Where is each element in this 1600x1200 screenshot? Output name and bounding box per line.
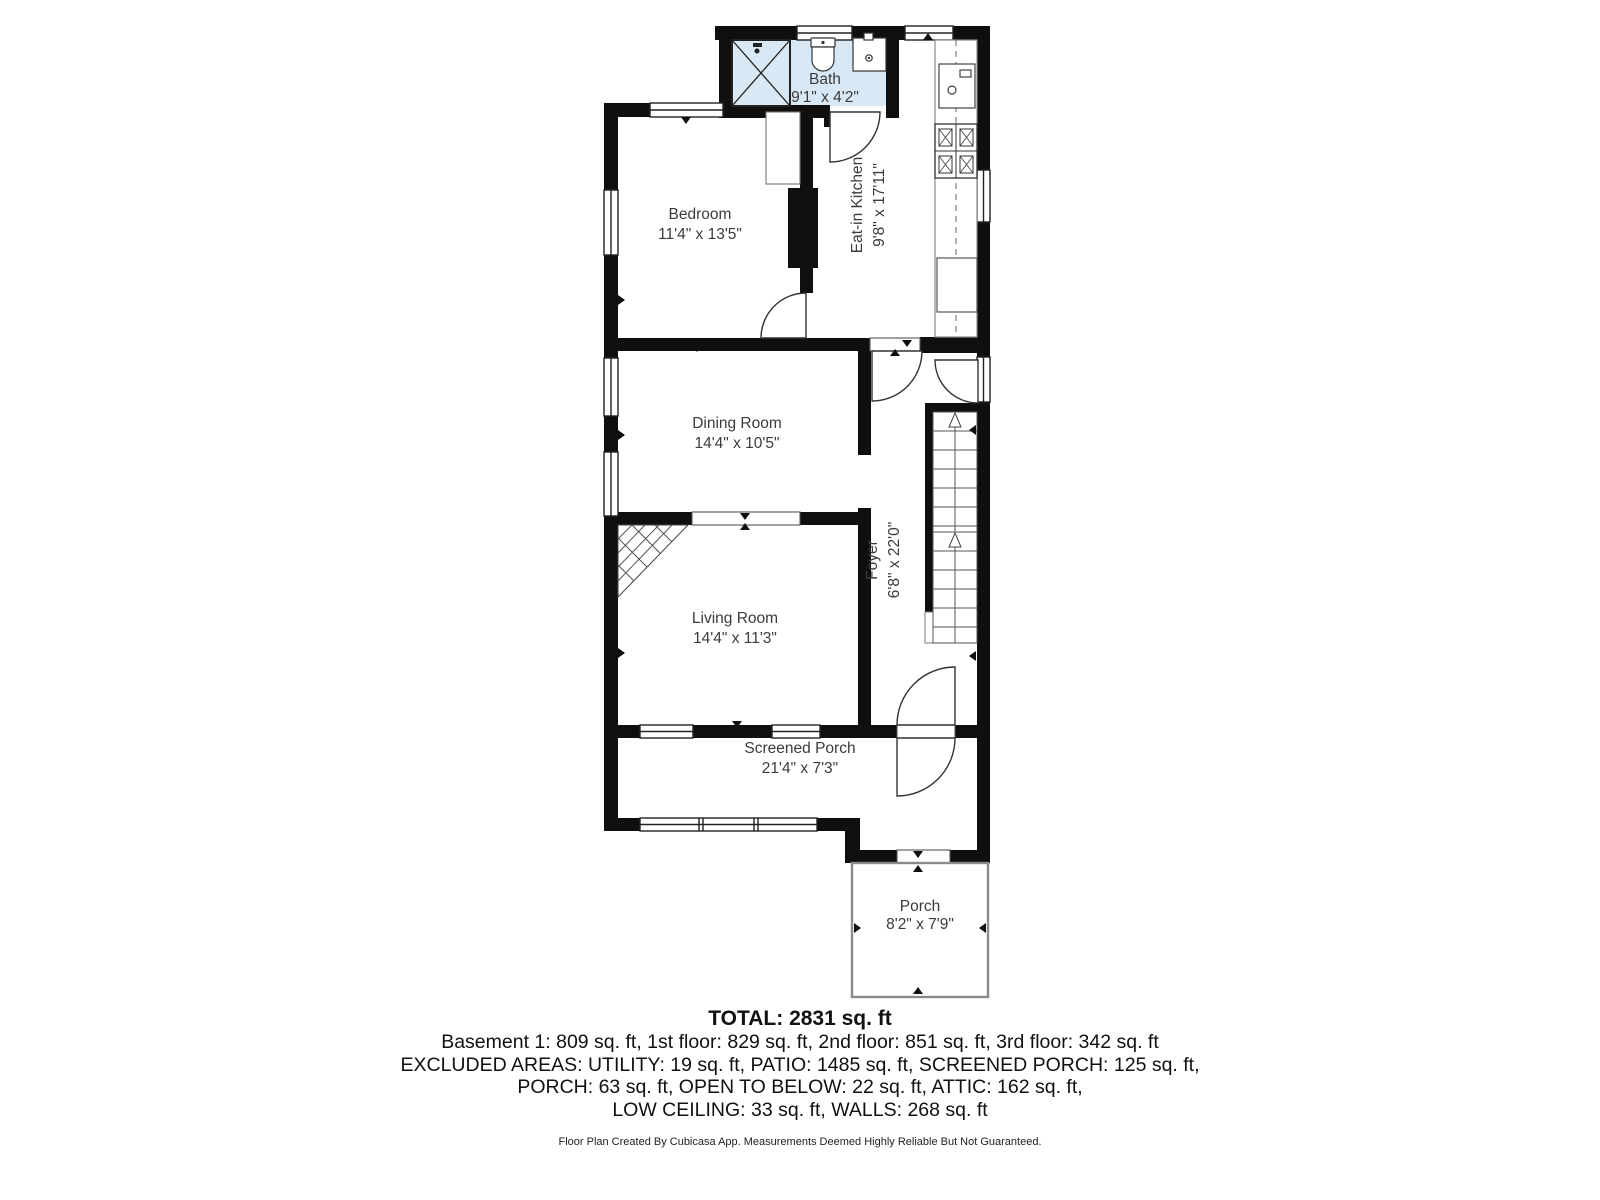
screened-porch-label: Screened Porch — [744, 740, 855, 757]
hall-door — [872, 351, 922, 401]
bedroom-label: Bedroom — [669, 206, 732, 223]
kitchen-label: Eat-in Kitchen — [849, 157, 866, 254]
disclaimer-text: Floor Plan Created By Cubicasa App. Meas… — [0, 1136, 1600, 1148]
excluded-areas-2: PORCH: 63 sq. ft, OPEN TO BELOW: 22 sq. … — [0, 1076, 1600, 1099]
living-label: Living Room — [692, 610, 778, 627]
closet-chase — [766, 112, 800, 184]
floor-plan-page: Bath 9'1" x 4'2" Bedroom 11'4" x 13'5" E… — [0, 0, 1600, 1200]
dining-label: Dining Room — [692, 415, 782, 432]
bedroom-door — [761, 293, 806, 338]
kitchen-fixtures — [935, 40, 977, 337]
shower — [732, 40, 790, 106]
porch-label: Porch — [900, 898, 941, 915]
refrigerator — [937, 258, 977, 312]
bath-sink — [853, 33, 886, 71]
hatched-area — [618, 525, 688, 597]
foyer-dims: 6'8" x 22'0" — [886, 522, 903, 598]
porch-dims: 8'2" x 7'9" — [886, 916, 954, 933]
excluded-areas-1: EXCLUDED AREAS: UTILITY: 19 sq. ft, PATI… — [0, 1054, 1600, 1077]
stove — [935, 124, 977, 178]
total-area: TOTAL: 2831 sq. ft — [0, 1006, 1600, 1031]
foyer-door-outswing — [897, 738, 955, 796]
stair-top-door — [935, 360, 978, 403]
living-dims: 14'4" x 11'3" — [693, 630, 777, 647]
foyer-door-inswing — [897, 667, 955, 725]
shower-head-icon — [753, 43, 762, 47]
bath-label: Bath — [809, 71, 841, 88]
staircase — [925, 412, 977, 643]
bath-dims: 9'1" x 4'2" — [791, 89, 859, 106]
screened-porch-dims: 21'4" x 7'3" — [762, 760, 838, 777]
dining-dims: 14'4" x 10'5" — [694, 435, 779, 452]
area-summary: TOTAL: 2831 sq. ft Basement 1: 809 sq. f… — [0, 1006, 1600, 1121]
excluded-areas-3: LOW CEILING: 33 sq. ft, WALLS: 268 sq. f… — [0, 1099, 1600, 1122]
floor-areas: Basement 1: 809 sq. ft, 1st floor: 829 s… — [0, 1031, 1600, 1054]
foyer-label: Foyer — [864, 540, 881, 580]
toilet — [811, 38, 835, 71]
bath-kitchen-door — [830, 112, 880, 162]
kitchen-dims: 9'8" x 17'11" — [871, 163, 888, 247]
bedroom-dims: 11'4" x 13'5" — [658, 226, 742, 243]
